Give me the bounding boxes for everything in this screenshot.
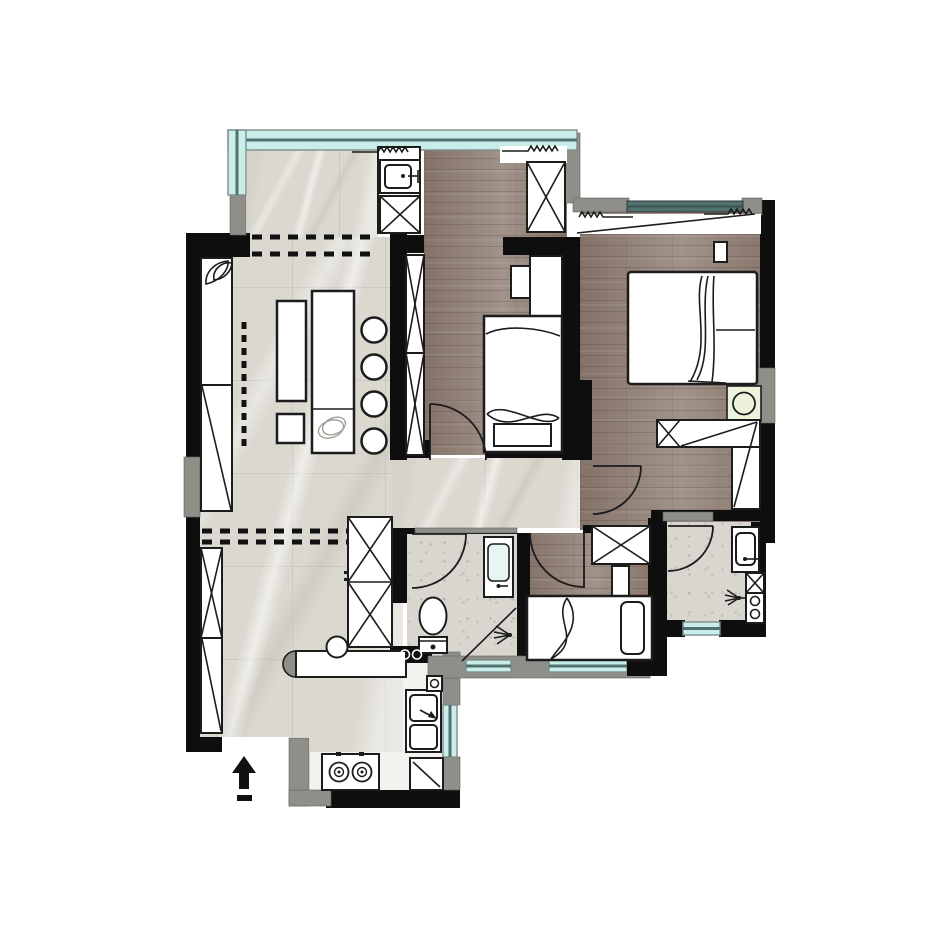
wardrobe-l-shaped — [657, 420, 760, 509]
bar-stool-icon — [362, 392, 387, 417]
cabinet-icon — [746, 573, 764, 593]
master-bedroom — [575, 209, 761, 514]
window-bathroom-2 — [683, 622, 720, 635]
double-bed — [628, 272, 757, 384]
door-bathroom-1 — [412, 534, 466, 588]
left-cabinet-lower — [201, 548, 222, 733]
bathroom-1 — [401, 534, 517, 661]
bar-stool-icon — [362, 355, 387, 380]
wardrobe-icon — [592, 526, 650, 564]
plan-linework — [0, 0, 932, 932]
bar-stools — [362, 318, 387, 454]
bar-stool-icon — [362, 318, 387, 343]
fridge-icon — [410, 758, 443, 790]
bedroom-3 — [527, 526, 652, 660]
shower-head-icon — [494, 626, 512, 644]
door-bedroom-2 — [430, 404, 486, 460]
tall-pantry-cabinet — [344, 517, 392, 647]
wardrobe-icon — [527, 162, 565, 232]
door-bedroom-3 — [530, 533, 584, 588]
bathroom-2 — [668, 526, 764, 623]
toilet-icon — [419, 598, 447, 654]
entry-arrow-icon — [232, 756, 256, 789]
vanity-sink — [732, 527, 760, 572]
floor-plan-canvas — [0, 0, 932, 932]
nightstand — [511, 266, 532, 298]
counter-basin-icon — [327, 637, 348, 658]
single-bed — [484, 316, 562, 452]
gas-stove-icon — [322, 752, 379, 790]
vanity-sink — [484, 537, 513, 597]
nightstand-lamp — [727, 386, 761, 421]
single-bed — [527, 596, 652, 660]
window-master-bedroom — [627, 201, 743, 212]
entry — [232, 756, 256, 801]
laundry-sink — [380, 160, 420, 193]
window-kitchen — [443, 705, 457, 757]
balcony-laundry — [352, 147, 420, 233]
nightstand — [612, 566, 629, 598]
left-cabinet-upper — [201, 258, 232, 511]
washer-hookup-icon — [746, 593, 764, 623]
kitchen-sink — [406, 690, 441, 752]
kitchen — [322, 676, 443, 790]
bar-stool-icon — [362, 429, 387, 454]
door-master-bedroom — [593, 466, 641, 514]
balcony-cabinet-icon — [380, 196, 420, 233]
door-bathroom-2 — [668, 526, 713, 571]
drain-box-icon — [427, 676, 442, 691]
pillow — [621, 602, 644, 654]
wardrobe-column-icon — [406, 255, 424, 455]
headboard-cabinet — [530, 256, 562, 316]
dining-bench — [277, 301, 306, 401]
stool — [277, 414, 304, 443]
dining-island — [312, 291, 354, 453]
living-dining — [201, 258, 406, 733]
wall-shelf — [714, 242, 727, 262]
bedroom-2 — [406, 146, 567, 460]
